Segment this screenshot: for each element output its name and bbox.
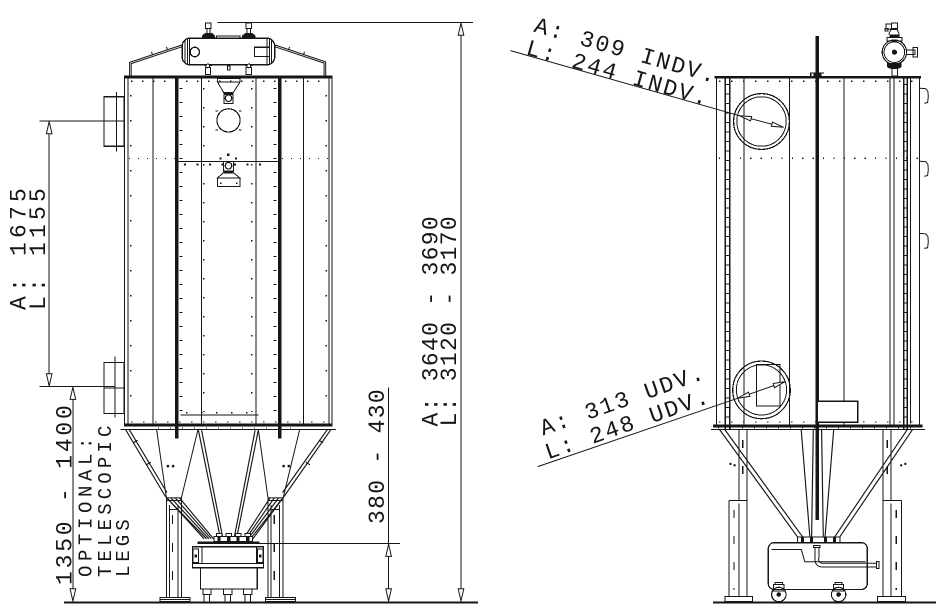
svg-text:L: 1155: L: 1155 — [26, 184, 52, 310]
svg-text:L: 3120 - 3170: L: 3120 - 3170 — [437, 215, 463, 426]
svg-text:LEGS: LEGS — [113, 515, 135, 577]
svg-text:380 - 430: 380 - 430 — [365, 388, 391, 524]
